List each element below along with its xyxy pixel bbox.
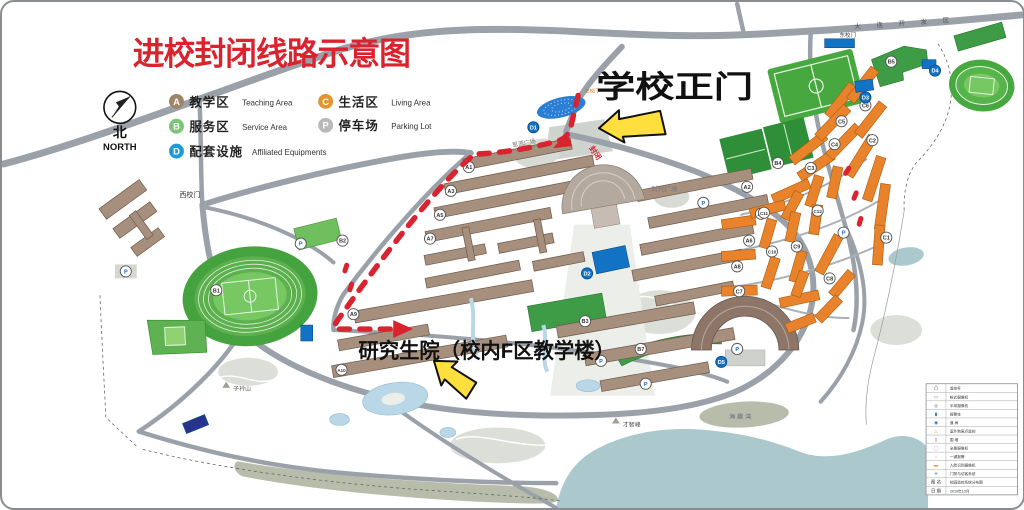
svg-text:C3: C3	[807, 166, 814, 172]
svg-text:▯: ▯	[935, 437, 937, 442]
svg-text:D: D	[173, 147, 180, 158]
building-marker: B2	[337, 235, 348, 246]
building-marker: P	[838, 227, 849, 238]
svg-text:○: ○	[935, 454, 938, 459]
svg-text:B2: B2	[339, 239, 346, 245]
building-marker: B1	[211, 285, 222, 296]
svg-text:道 闸: 道 闸	[950, 420, 959, 425]
baseball-field	[145, 316, 209, 358]
svg-text:A5: A5	[436, 213, 443, 219]
west-gate-label: 西校门	[179, 190, 200, 199]
building-marker: P	[295, 238, 306, 249]
building-marker: D4	[929, 65, 940, 76]
building-marker: C2	[867, 135, 878, 146]
svg-text:C7: C7	[736, 289, 743, 295]
building-marker: P	[640, 378, 651, 389]
building-marker: C11	[758, 207, 769, 218]
building-marker: C10	[766, 246, 777, 257]
svg-text:A: A	[173, 97, 180, 108]
building-marker: C7	[734, 286, 745, 297]
svg-text:围 墙: 围 墙	[950, 437, 959, 442]
svg-text:P: P	[842, 231, 846, 237]
building-marker: D1	[528, 122, 539, 133]
svg-text:✛: ✛	[934, 471, 938, 476]
svg-text:▭: ▭	[934, 394, 938, 399]
legend-item-parking: P 停车场 Parking Lot	[318, 118, 432, 133]
svg-text:D3: D3	[862, 96, 869, 102]
svg-text:P: P	[322, 121, 328, 132]
building-marker: P	[732, 343, 743, 354]
svg-text:B: B	[173, 122, 180, 133]
svg-text:C8: C8	[826, 276, 833, 282]
svg-text:C1: C1	[883, 236, 890, 242]
svg-text:A3: A3	[447, 189, 454, 195]
east-gate-label: 东校门	[840, 31, 856, 39]
building-marker: A5	[434, 209, 445, 220]
building-marker: A9	[348, 309, 359, 320]
svg-text:枪式摄像机: 枪式摄像机	[950, 394, 969, 399]
svg-text:Teaching Area: Teaching Area	[242, 98, 293, 107]
svg-text:D2: D2	[584, 271, 591, 277]
svg-text:室外制高点监控: 室外制高点监控	[950, 428, 976, 433]
svg-text:◎: ◎	[934, 403, 938, 408]
svg-text:B4: B4	[774, 161, 782, 167]
page-title: 进校封闭线路示意图	[133, 36, 410, 72]
svg-text:配套设施: 配套设施	[189, 144, 243, 159]
building-marker: C3	[805, 162, 816, 173]
front-gate-label: 正校门	[585, 87, 599, 94]
school-gate-label: 学校正门	[596, 69, 753, 104]
svg-text:C4: C4	[831, 142, 839, 148]
svg-text:监控杆: 监控杆	[950, 386, 961, 391]
svg-text:◯: ◯	[934, 446, 939, 451]
legend-item-living: C 生活区 Living Area	[318, 94, 431, 109]
svg-text:Living Area: Living Area	[391, 98, 431, 107]
building-marker: B7	[635, 343, 646, 354]
building-marker: A6	[744, 235, 755, 246]
svg-text:2019年10月: 2019年10月	[950, 488, 970, 493]
compass-zh: 北	[113, 124, 127, 140]
svg-text:A9: A9	[350, 312, 357, 318]
svg-text:A2: A2	[744, 185, 751, 191]
building-marker: C12	[812, 205, 823, 216]
svg-text:B7: B7	[637, 347, 644, 353]
road-name-label: 大 连 开 发 区	[854, 15, 956, 31]
svg-text:P: P	[735, 347, 739, 353]
svg-text:C2: C2	[869, 138, 876, 144]
svg-text:C11: C11	[760, 211, 769, 216]
building-marker: P	[698, 197, 709, 208]
svg-text:B5: B5	[888, 60, 895, 66]
legend-item-affiliated: D 配套设施 Affiliated Equipments	[169, 144, 326, 159]
svg-text:Parking Lot: Parking Lot	[391, 122, 432, 131]
svg-text:P: P	[702, 201, 706, 207]
svg-text:▬: ▬	[934, 463, 939, 468]
building-marker: C1	[881, 232, 892, 243]
building-marker: B5	[886, 56, 897, 67]
svg-text:P: P	[644, 382, 648, 388]
building-marker: A10	[336, 364, 347, 375]
svg-text:D1: D1	[530, 125, 537, 131]
building-marker: A2	[742, 181, 753, 192]
svg-text:A8: A8	[734, 265, 741, 271]
building-marker: B3	[580, 316, 591, 327]
legend: A 教学区 Teaching Area B 服务区 Service Area C…	[169, 94, 432, 159]
hill-icon	[222, 382, 230, 388]
bay-label: 海趣湾	[729, 413, 753, 421]
compass-en: NORTH	[103, 142, 137, 153]
building-marker: D2	[581, 268, 592, 279]
svg-text:D4: D4	[931, 69, 939, 75]
building-marker: C5	[836, 116, 847, 127]
building-marker: C4	[829, 139, 840, 150]
svg-text:停车场: 停车场	[339, 118, 379, 133]
surveillance-legend-table: 凸监控杆▭枪式摄像机◎半球摄像机▮报警柱◉道 闸△室外制高点监控▯围 墙◯全景摄…	[926, 384, 1017, 495]
zijin-hill-label: 子衿山	[233, 385, 251, 393]
svg-text:生活区: 生活区	[339, 94, 379, 109]
campus-map: A1 A3 A5 A7 A9 A2 A4 A6 A8 A10 B1 B2 B3 …	[2, 2, 1023, 508]
building-marker: C8	[824, 273, 835, 284]
grad-school-label: 研究生院（校内F区教学楼）	[358, 339, 614, 363]
campus-map-canvas: A1 A3 A5 A7 A9 A2 A4 A6 A8 A10 B1 B2 B3 …	[0, 0, 1024, 510]
building-marker: A3	[445, 185, 456, 196]
svg-text:◉: ◉	[934, 420, 938, 425]
svg-text:全景摄像机: 全景摄像机	[950, 446, 969, 451]
building-marker: P	[120, 266, 131, 277]
svg-text:B1: B1	[213, 288, 220, 294]
svg-text:C6: C6	[862, 103, 869, 109]
legend-item-service: B 服务区 Service Area	[169, 119, 288, 134]
svg-text:B3: B3	[582, 319, 589, 325]
svg-text:C5: C5	[838, 119, 845, 125]
times-plaza-label: 时代广场	[652, 184, 678, 193]
svg-text:C9: C9	[793, 245, 800, 251]
svg-text:C: C	[322, 97, 329, 108]
svg-text:一键报警: 一键报警	[950, 454, 965, 459]
svg-text:A10: A10	[337, 368, 346, 373]
svg-text:P: P	[124, 269, 128, 275]
svg-text:D5: D5	[718, 360, 725, 366]
svg-text:半球摄像机: 半球摄像机	[950, 403, 969, 408]
svg-text:教学区: 教学区	[188, 94, 229, 109]
svg-text:图 名: 图 名	[931, 479, 941, 486]
building-marker: D5	[716, 356, 727, 367]
svg-text:校园监控系统分布图: 校园监控系统分布图	[950, 480, 983, 485]
building-marker: A8	[732, 261, 743, 272]
svg-text:▮: ▮	[935, 411, 937, 416]
svg-text:C10: C10	[768, 250, 777, 255]
building-marker: D3	[860, 92, 871, 103]
building-marker: A7	[424, 233, 435, 244]
stadium-northeast	[946, 56, 1017, 114]
svg-text:A1: A1	[465, 165, 472, 171]
svg-text:A6: A6	[746, 239, 753, 245]
svg-text:门禁与访客系统: 门禁与访客系统	[950, 471, 976, 476]
svg-text:Service Area: Service Area	[242, 123, 288, 132]
svg-text:P: P	[299, 242, 303, 248]
svg-text:Affiliated Equipments: Affiliated Equipments	[252, 148, 326, 157]
hill-icon	[612, 418, 620, 424]
building-marker: C9	[791, 241, 802, 252]
svg-text:报警柱: 报警柱	[950, 411, 961, 416]
svg-text:C12: C12	[814, 209, 823, 214]
svg-text:服务区: 服务区	[189, 119, 229, 134]
building-marker: B4	[772, 157, 783, 168]
caizhi-hill-label: 才智峰	[623, 420, 641, 428]
svg-text:A7: A7	[426, 237, 433, 243]
svg-text:人脸识别摄像机: 人脸识别摄像机	[950, 463, 976, 468]
